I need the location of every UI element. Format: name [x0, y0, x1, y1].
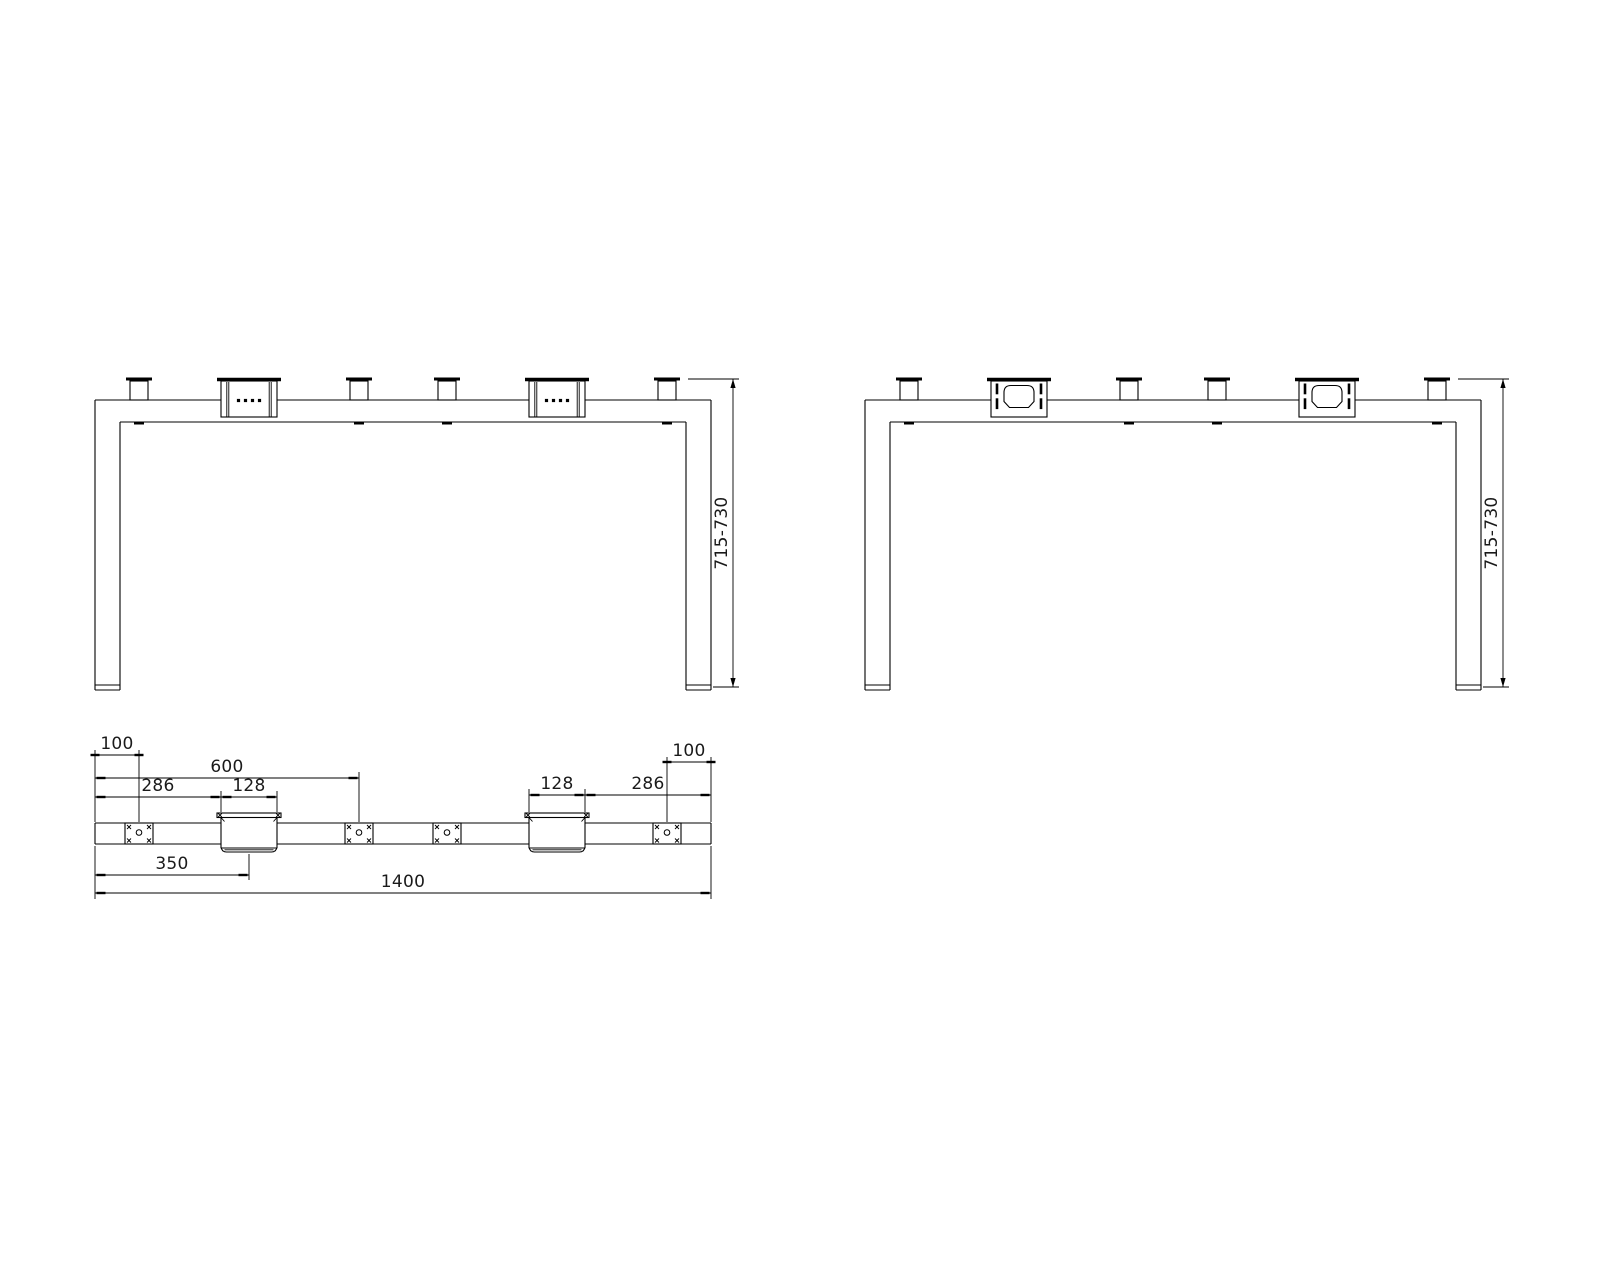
dim-600-label: 600: [210, 757, 243, 777]
dim-height-left-label: 715-730: [712, 496, 732, 569]
dim-100-right-label: 100: [672, 741, 705, 761]
technical-drawing: 1006002861281282861003501400715-730715-7…: [0, 0, 1600, 1280]
dim-1400-label: 1400: [381, 872, 425, 892]
dim-height-right-label: 715-730: [1482, 496, 1502, 569]
dimensions: 1006002861281282861003501400715-730715-7…: [91, 379, 1510, 899]
dim-286-right-label: 286: [631, 774, 664, 794]
dim-350-label: 350: [155, 854, 188, 874]
front-view-left: [95, 379, 711, 690]
front-view-right: [865, 379, 1481, 690]
dim-286-left-label: 286: [141, 776, 174, 796]
dim-100-left-label: 100: [100, 734, 133, 754]
dim-128-right-label: 128: [540, 774, 573, 794]
dim-128-left-label: 128: [232, 776, 265, 796]
drawing-sheet: 1006002861281282861003501400715-730715-7…: [0, 0, 1600, 1280]
top-view: [95, 813, 711, 852]
